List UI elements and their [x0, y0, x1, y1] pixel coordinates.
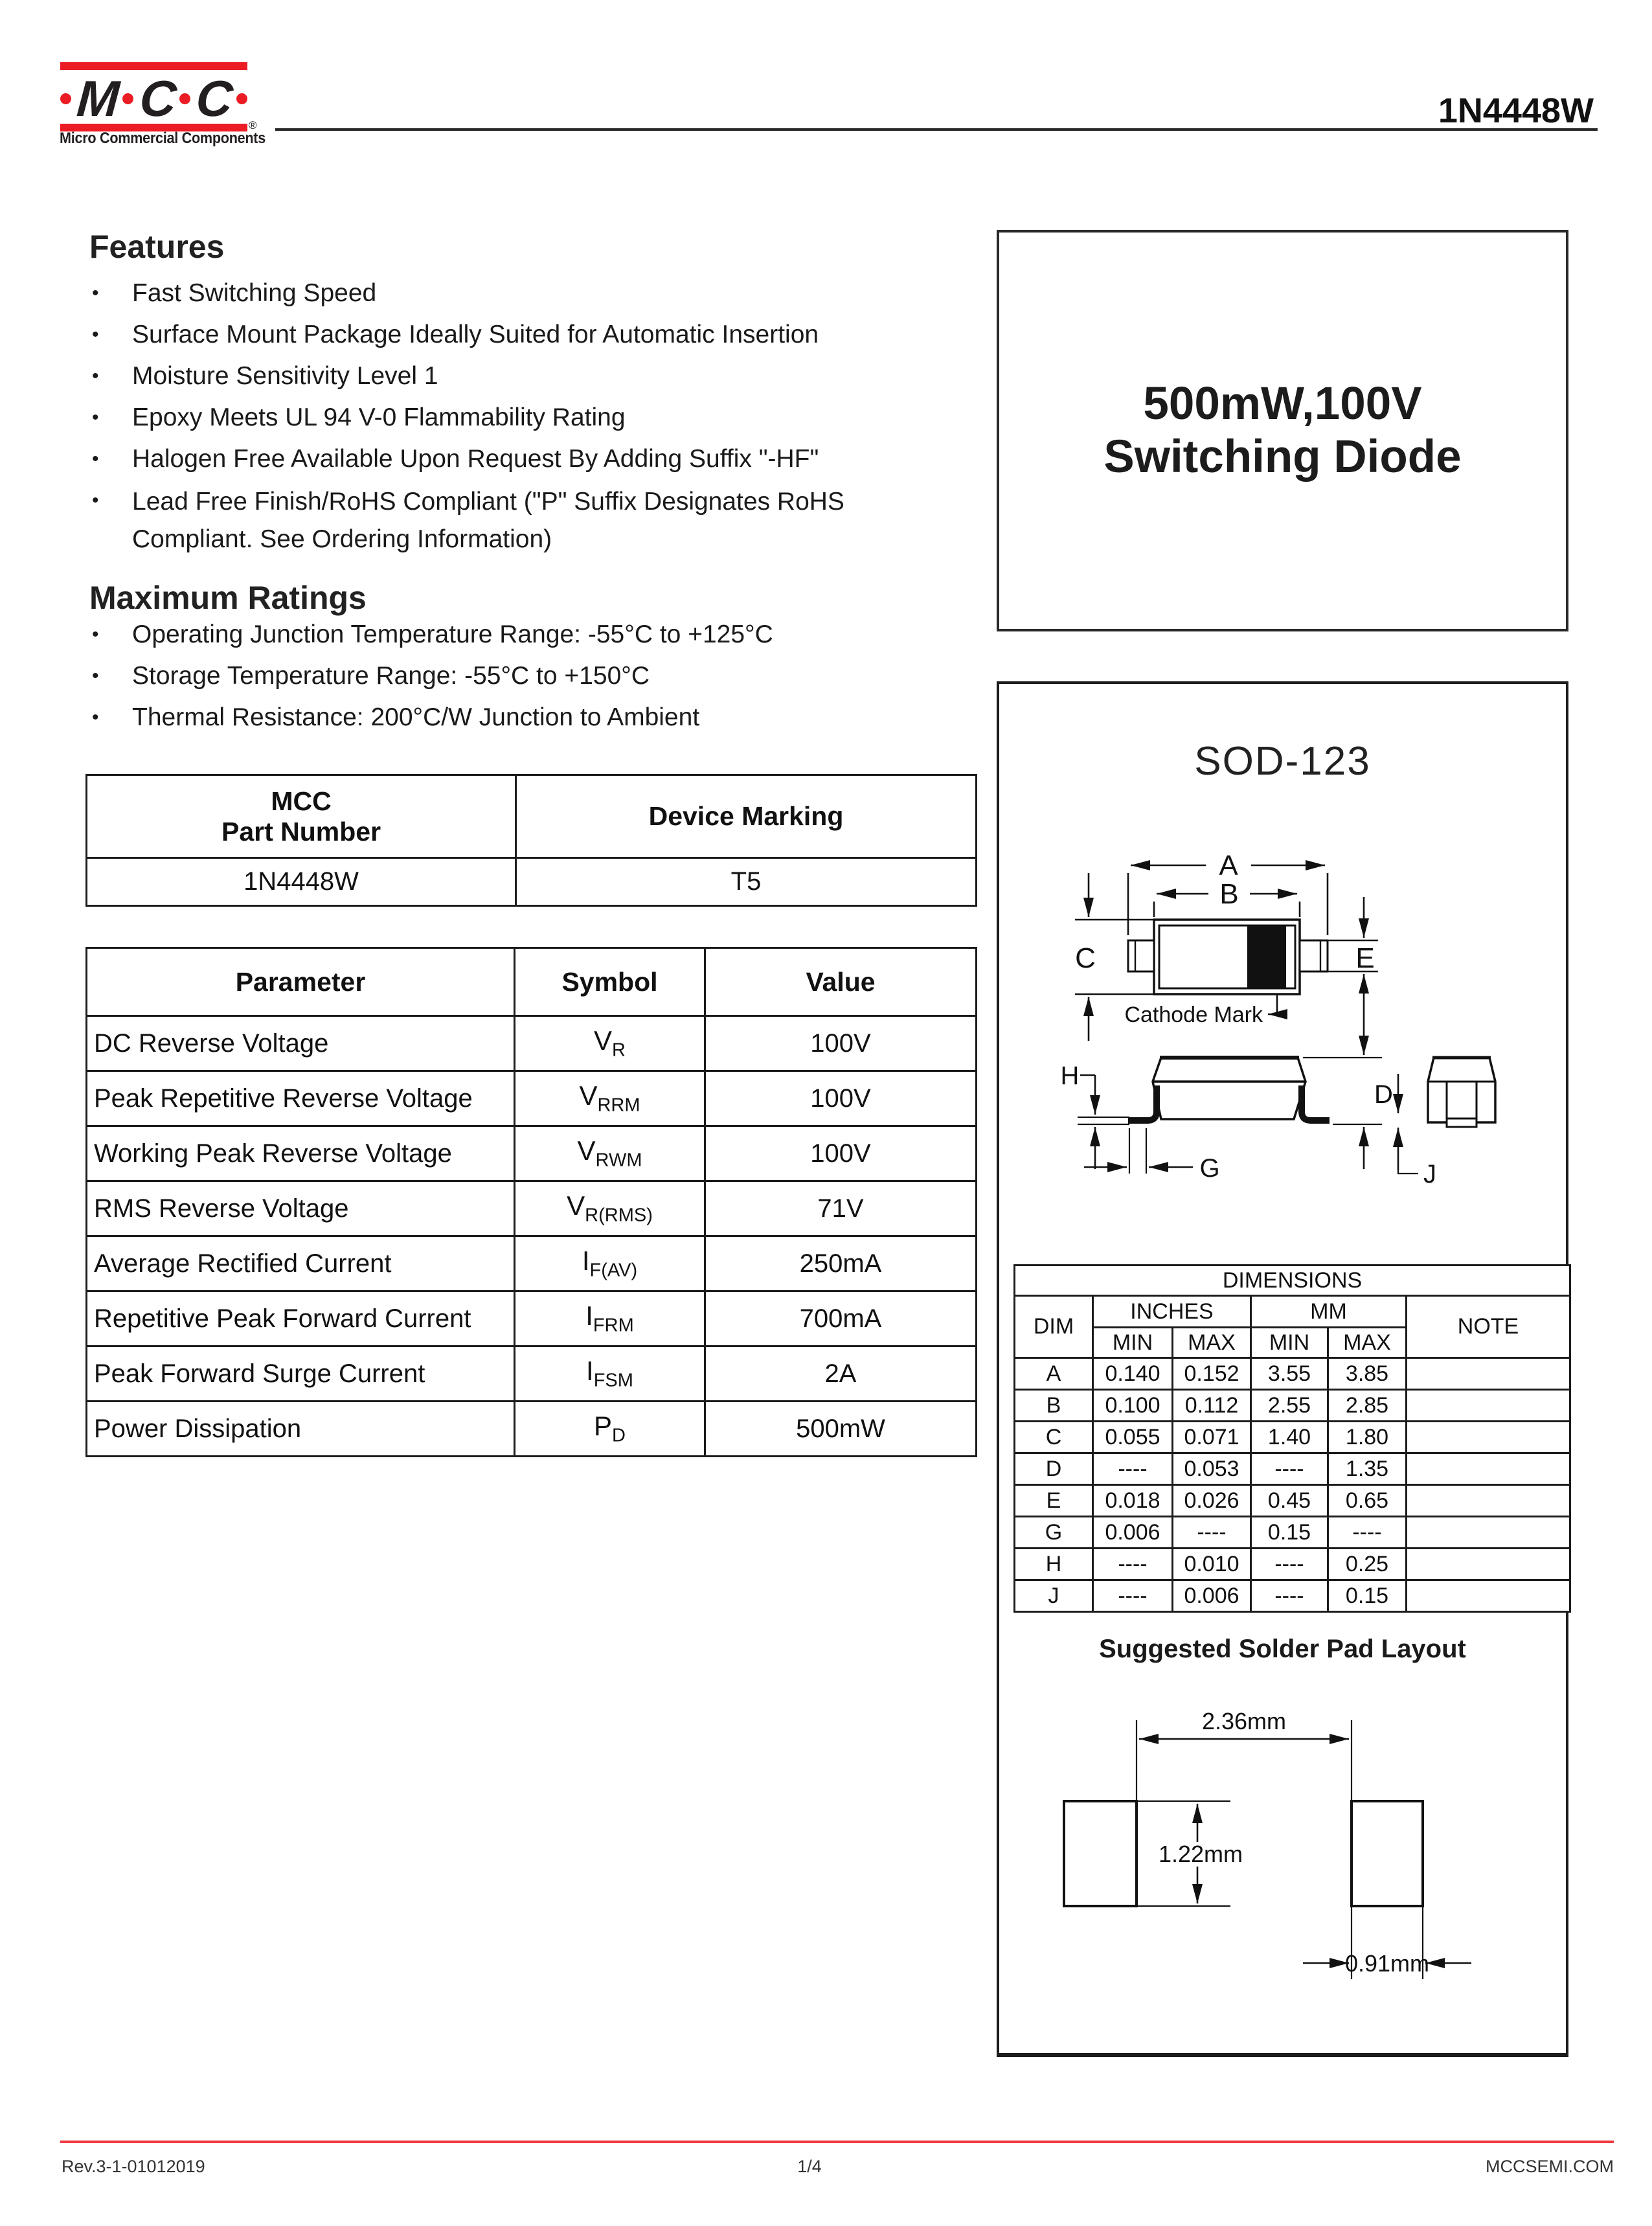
col-header-device-marking: Device Marking: [516, 775, 977, 858]
dimensions-table: DIMENSIONS DIM INCHES MM NOTE MIN MAX MI…: [1013, 1264, 1571, 1613]
table-row: 1N4448W T5: [87, 858, 977, 906]
bullet-icon: •: [92, 614, 132, 655]
col-header-parameter: Parameter: [87, 948, 515, 1016]
list-item: •Thermal Resistance: 200°C/W Junction to…: [92, 697, 953, 738]
list-item: •Surface Mount Package Ideally Suited fo…: [92, 314, 953, 356]
table-row: C0.0550.0711.401.80: [1015, 1422, 1570, 1453]
dim-label-g: G: [1199, 1154, 1219, 1183]
dims-col-inches: INCHES: [1093, 1296, 1251, 1328]
list-item: •Halogen Free Available Upon Request By …: [92, 438, 953, 480]
symbol: PD: [594, 1411, 626, 1441]
product-title-line2: Switching Diode: [1103, 431, 1461, 484]
dim-label-a: A: [1219, 850, 1238, 881]
max-ratings-title: Maximum Ratings: [89, 579, 367, 617]
symbol: VRWM: [578, 1135, 642, 1166]
logo-dot-icon: [236, 93, 247, 104]
logo-dot-icon: [179, 93, 190, 104]
table-row: D----0.053----1.35: [1015, 1453, 1570, 1485]
logo-letters: M C C: [60, 73, 247, 124]
bullet-icon: •: [92, 397, 132, 438]
max-ratings-list: •Operating Junction Temperature Range: -…: [92, 614, 953, 738]
bullet-icon: •: [92, 697, 132, 738]
logo-letter: C: [138, 73, 175, 124]
table-row: Average Rectified Current IF(AV) 250mA: [87, 1236, 977, 1291]
dim-label-e: E: [1355, 942, 1374, 974]
table-row: Power Dissipation PD 500mW: [87, 1402, 977, 1457]
list-item: •Epoxy Meets UL 94 V-0 Flammability Rati…: [92, 397, 953, 438]
logo-bar-top: [60, 62, 247, 70]
bullet-icon: •: [92, 314, 132, 356]
col-header-value: Value: [705, 948, 977, 1016]
bullet-icon: •: [92, 356, 132, 397]
part-number-table: MCC Part Number Device Marking 1N4448W T…: [85, 774, 977, 907]
table-row: B0.1000.1122.552.85: [1015, 1390, 1570, 1422]
logo-dot-icon: [122, 93, 133, 104]
features-title: Features: [89, 228, 224, 266]
dim-label-d: D: [1374, 1080, 1393, 1109]
footer-revision: Rev.3-1-01012019: [62, 2157, 205, 2177]
symbol: IFSM: [586, 1356, 633, 1386]
footer-rule: [60, 2141, 1614, 2143]
table-row: G0.006----0.15----: [1015, 1517, 1570, 1549]
table-row: RMS Reverse Voltage VR(RMS) 71V: [87, 1181, 977, 1236]
logo-letter: M: [75, 73, 118, 124]
dim-label-b: B: [1219, 878, 1238, 910]
dim-label-j: J: [1423, 1160, 1436, 1188]
package-outline-box: SOD-123: [997, 681, 1568, 2057]
datasheet-page: M C C ® Micro Commercial Components 1N44…: [0, 0, 1652, 2226]
dims-col-note: NOTE: [1407, 1296, 1570, 1358]
table-row: H----0.010----0.25: [1015, 1549, 1570, 1580]
symbol: IFRM: [585, 1300, 634, 1331]
table-row: Peak Forward Surge Current IFSM 2A: [87, 1346, 977, 1402]
symbol: VR: [594, 1025, 626, 1056]
solder-dim-height: 1.22mm: [1159, 1841, 1243, 1867]
table-row: A0.1400.1523.553.85: [1015, 1358, 1570, 1390]
product-title-box: 500mW,100V Switching Diode: [997, 230, 1568, 631]
dims-title: DIMENSIONS: [1015, 1266, 1570, 1296]
bullet-icon: •: [92, 655, 132, 697]
table-row: J----0.006----0.15: [1015, 1580, 1570, 1612]
bullet-icon: •: [92, 273, 132, 314]
table-row: Peak Repetitive Reverse Voltage VRRM 100…: [87, 1071, 977, 1126]
cell-marking: T5: [516, 858, 977, 906]
logo-dot-icon: [60, 93, 71, 104]
solder-pad-layout-title: Suggested Solder Pad Layout: [999, 1635, 1566, 1664]
footer-website: MCCSEMI.COM: [1486, 2157, 1614, 2177]
solder-dim-width: 0.91mm: [1345, 1950, 1429, 1977]
table-row: E0.0180.0260.450.65: [1015, 1485, 1570, 1517]
list-item: •Moisture Sensitivity Level 1: [92, 356, 953, 397]
product-title-line1: 500mW,100V: [1143, 378, 1421, 431]
header-rule: [275, 128, 1598, 131]
col-header-part-number: MCC Part Number: [87, 775, 516, 858]
symbol: VRRM: [579, 1080, 640, 1111]
cell-part: 1N4448W: [87, 858, 516, 906]
list-item: •Lead Free Finish/RoHS Compliant ("P" Su…: [92, 480, 953, 558]
dims-col-mm: MM: [1251, 1296, 1407, 1328]
list-item: •Operating Junction Temperature Range: -…: [92, 614, 953, 655]
bullet-icon: •: [92, 438, 132, 480]
table-row: Repetitive Peak Forward Current IFRM 700…: [87, 1291, 977, 1346]
ratings-table: Parameter Symbol Value DC Reverse Voltag…: [85, 947, 977, 1457]
bullet-icon: •: [92, 480, 132, 558]
list-item: •Storage Temperature Range: -55°C to +15…: [92, 655, 953, 697]
table-row: Working Peak Reverse Voltage VRWM 100V: [87, 1126, 977, 1181]
symbol: VR(RMS): [567, 1190, 653, 1221]
logo-letter: C: [195, 73, 232, 124]
dim-label-c: C: [1075, 942, 1096, 974]
footer-page-number: 1/4: [771, 2157, 848, 2177]
col-header-symbol: Symbol: [515, 948, 705, 1016]
page-title-part-number: 1N4448W: [1438, 91, 1594, 131]
symbol: IF(AV): [582, 1245, 637, 1276]
solder-dim-gap: 2.36mm: [1202, 1708, 1286, 1734]
features-list: •Fast Switching Speed •Surface Mount Pac…: [92, 273, 953, 558]
dim-label-h: H: [1061, 1062, 1080, 1090]
dims-col-dim: DIM: [1015, 1296, 1093, 1358]
logo-tagline: Micro Commercial Components: [60, 130, 266, 148]
cathode-mark-label: Cathode Mark: [1124, 1003, 1263, 1027]
list-item: •Fast Switching Speed: [92, 273, 953, 314]
table-row: DC Reverse Voltage VR 100V: [87, 1016, 977, 1071]
